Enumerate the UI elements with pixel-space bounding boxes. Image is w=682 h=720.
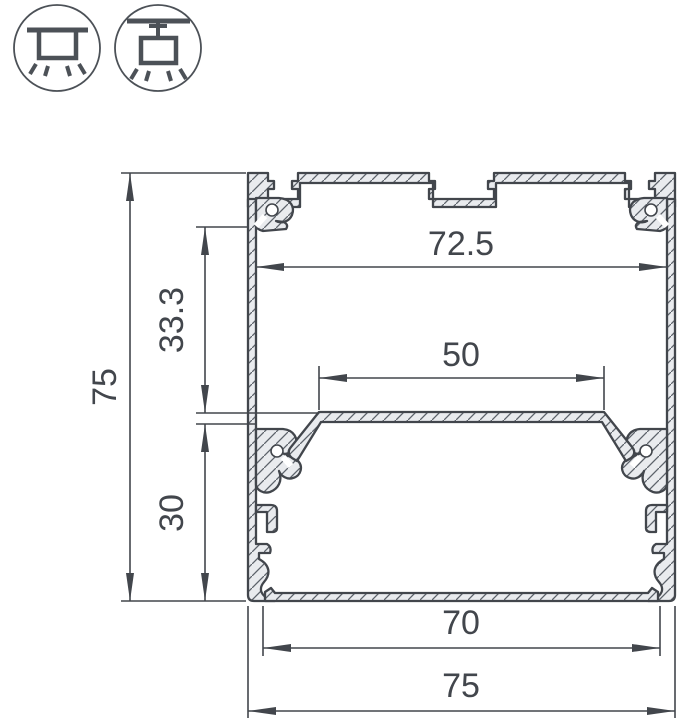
- dimension-upper-inner-depth: 33.3: [153, 227, 318, 413]
- dim-inner-bottom-width-label: 70: [442, 604, 480, 642]
- luminaire-box: [141, 38, 176, 63]
- dim-upper-depth-label: 33.3: [153, 287, 191, 353]
- technical-drawing-page: 75 33.3 30 72.5 50 70: [0, 0, 682, 720]
- profile-left-side: [248, 198, 301, 601]
- icon-circle: [115, 5, 201, 91]
- dimension-inner-bottom-width: 70: [263, 604, 660, 656]
- dim-overall-height-label: 75: [86, 368, 124, 406]
- led-mounting-plate: [289, 412, 635, 461]
- dim-inner-top-width-label: 72.5: [428, 225, 494, 263]
- dim-led-plate-width-label: 50: [442, 336, 480, 374]
- dimension-led-plate-width: 50: [319, 336, 604, 410]
- dim-overall-width-label: 75: [442, 667, 480, 705]
- profile-top-member: [248, 173, 675, 207]
- profile-right-side: [622, 198, 675, 601]
- dimension-inner-top-width: 72.5: [256, 225, 667, 271]
- surface-mount-icon: [14, 5, 100, 91]
- dim-lower-depth-label: 30: [153, 494, 191, 532]
- icon-circle: [14, 5, 100, 91]
- light-rays-icon: [131, 69, 186, 81]
- suspended-mount-icon: [115, 5, 201, 91]
- luminaire-box: [39, 30, 76, 58]
- light-rays-icon: [30, 64, 85, 76]
- bottom-diffuser-cover: [265, 588, 658, 601]
- top-plate-with-slots: [248, 173, 675, 207]
- dimension-lower-inner-depth: 30: [153, 424, 256, 601]
- profile-drawing: 75 33.3 30 72.5 50 70: [0, 0, 682, 720]
- dimension-overall-height: 75: [86, 173, 246, 601]
